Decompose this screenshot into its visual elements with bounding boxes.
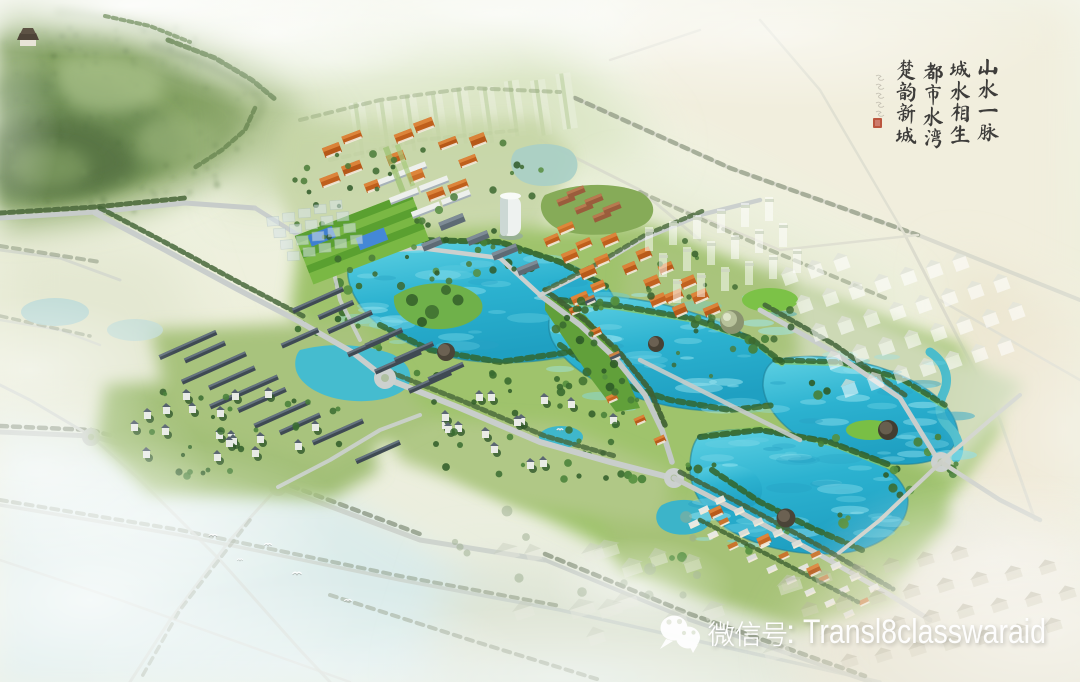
svg-text::: : — [786, 613, 795, 650]
svg-text:Transl8classwaraid: Transl8classwaraid — [803, 613, 1046, 651]
